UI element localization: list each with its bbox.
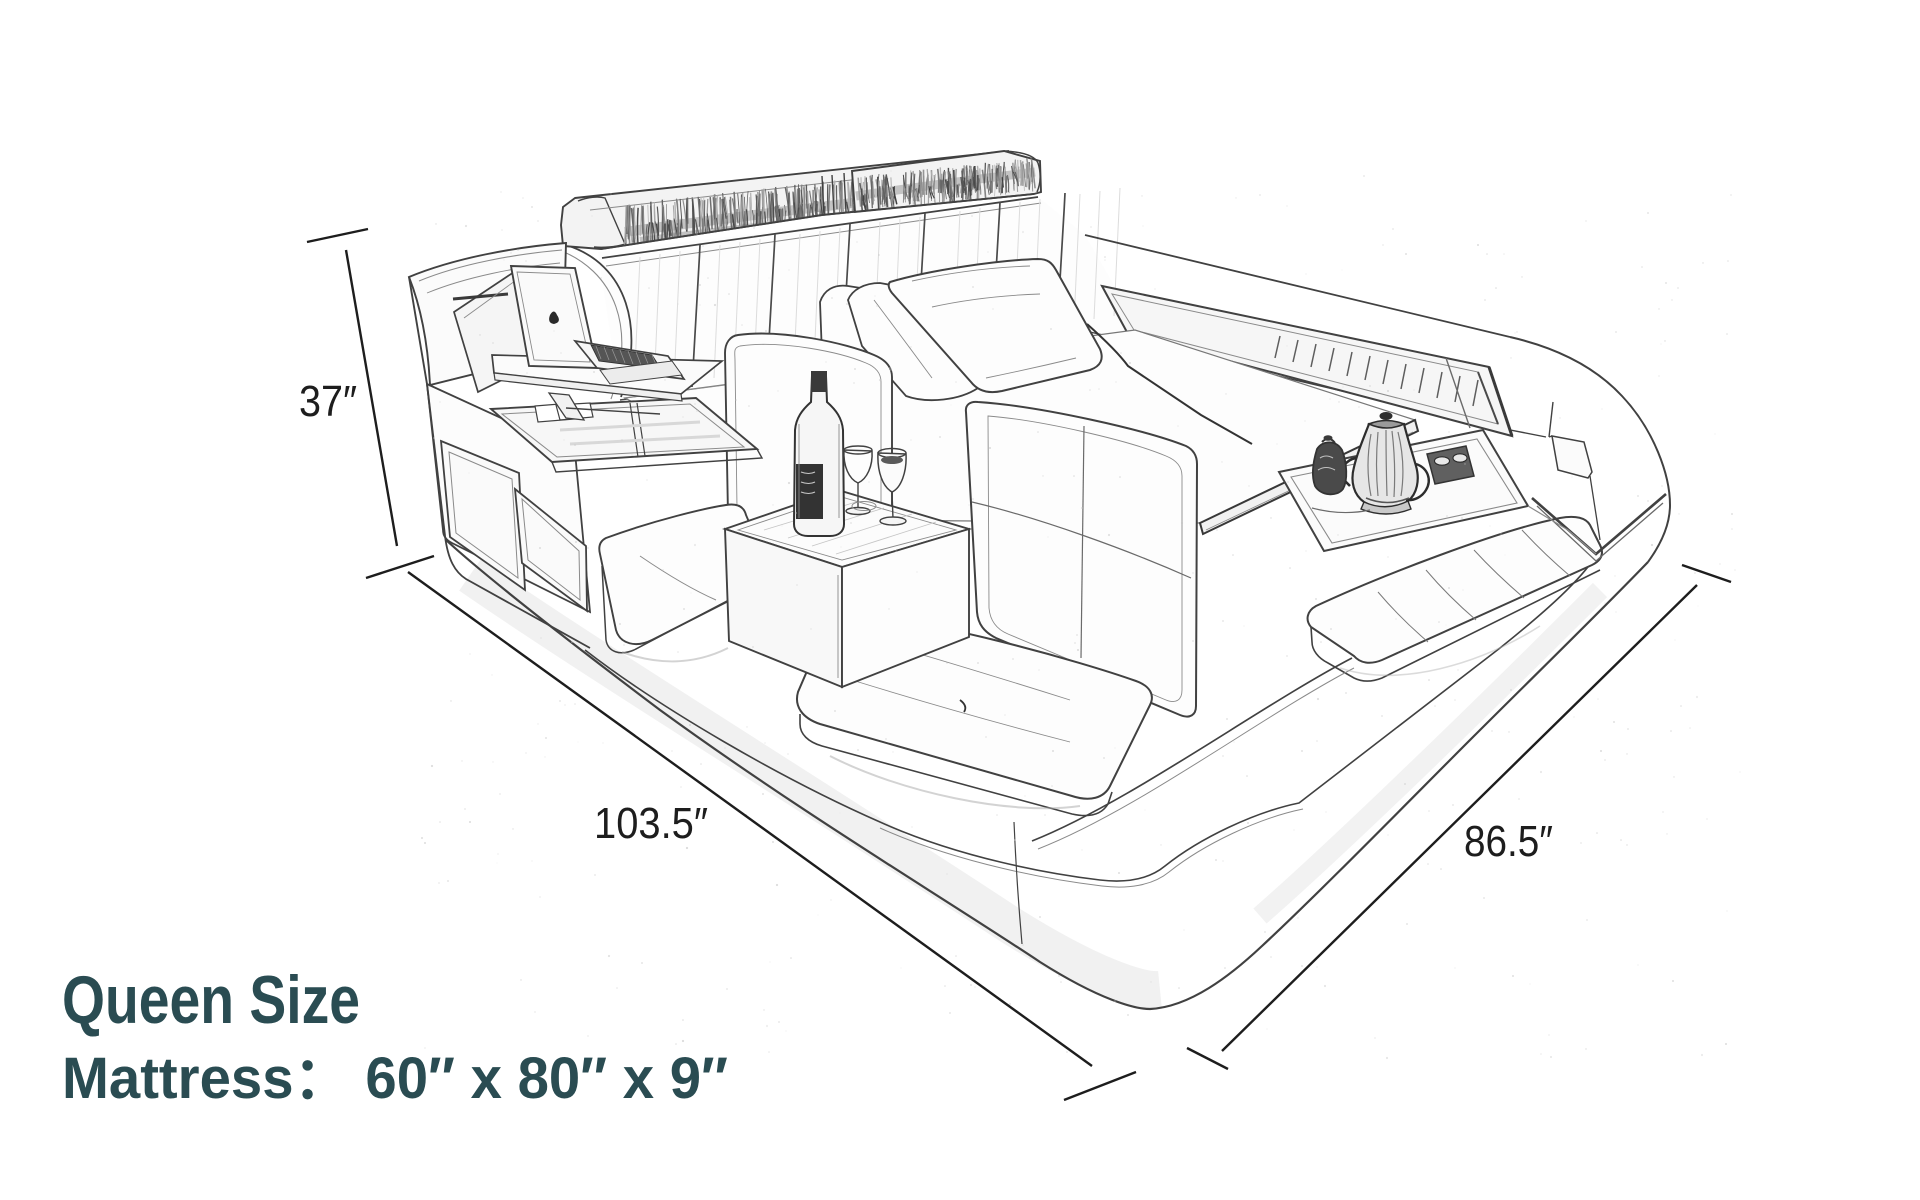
svg-text:37″: 37″ (299, 377, 357, 426)
svg-text:86.5″: 86.5″ (1464, 817, 1553, 866)
svg-text:103.5″: 103.5″ (594, 799, 708, 848)
svg-text:Queen Size: Queen Size (62, 962, 360, 1038)
svg-text:Mattress： 60″ x 80″ x 9″: Mattress： 60″ x 80″ x 9″ (62, 1046, 728, 1111)
